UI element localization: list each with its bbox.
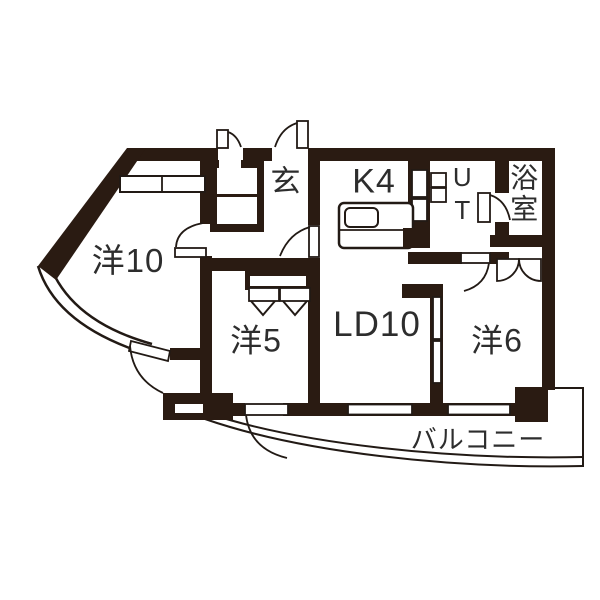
door-arc-yo10 — [176, 223, 203, 247]
slider-k-ut-upper — [412, 170, 427, 197]
wall-curve-stub — [170, 348, 202, 360]
wall-hall-south — [212, 258, 320, 271]
closet-yo5 — [245, 271, 311, 315]
door-leaf-entrance — [297, 121, 308, 148]
door-leaf-ut — [461, 253, 490, 263]
wall-se-block — [515, 387, 548, 422]
wall-top-2 — [243, 148, 272, 161]
wall-bath-south — [490, 235, 555, 247]
door-arc-storage — [228, 132, 241, 147]
slider-ld-yo6-upper — [433, 297, 441, 339]
storage-cell-upper — [217, 168, 257, 194]
room-label-bath: 浴室 — [508, 163, 537, 225]
door-leaf-yo5-balcony — [245, 404, 288, 415]
room-label-ut: UT — [449, 162, 476, 228]
wall-top-3 — [308, 148, 555, 161]
door-leaf-bath — [478, 193, 490, 222]
room-label-genkan: 玄 — [271, 168, 302, 199]
wall-ut-south — [408, 252, 462, 264]
room-label-yo10: 洋10 — [92, 244, 165, 278]
room-label-balcony: バルコニー — [411, 427, 545, 454]
closet-yo5-panel-left — [249, 288, 279, 301]
window-ld-south — [348, 405, 412, 415]
door-leaf-storage — [217, 130, 228, 148]
door-arc-ut — [464, 263, 489, 291]
storage-cell-lower — [217, 197, 257, 224]
sw-block-notch — [175, 404, 203, 413]
door-leaf-ld — [309, 226, 319, 257]
closet-yo6-door-left — [497, 259, 519, 281]
folding-door-mark-left — [251, 301, 275, 315]
window-yo6-south — [448, 405, 510, 415]
door-arc-ld — [280, 227, 310, 256]
closet-yo5-interior — [250, 276, 306, 286]
wall-yo10-east-lower — [200, 256, 212, 406]
wall-stub-ld — [402, 284, 443, 298]
slider-ld-yo6-lower — [433, 341, 441, 383]
wall-genkan-east-lower — [308, 258, 320, 271]
closet-yo5-panel-right — [280, 288, 310, 301]
closet-yo10 — [120, 176, 205, 192]
floorplan-drawing — [0, 0, 600, 600]
kitchen-sink — [345, 208, 378, 227]
wall-genkan-east-upper — [308, 161, 320, 225]
room-label-k4: K4 — [352, 165, 396, 200]
room-label-ld10: LD10 — [333, 307, 421, 343]
door-leaf-yo10 — [175, 248, 206, 257]
folding-door-mark-right — [283, 301, 307, 315]
room-label-yo5: 洋5 — [230, 325, 282, 358]
room-label-yo6: 洋6 — [471, 325, 523, 358]
ut-fixture-lower — [431, 188, 446, 202]
wall-bottom-west — [233, 403, 245, 416]
wall-right — [542, 148, 555, 390]
balcony-right-edge — [548, 388, 583, 467]
counter-end-block — [403, 228, 430, 248]
closet-yo6-door-right — [519, 259, 541, 281]
floorplan: 洋10 玄 K4 UT 浴室 洋5 LD10 洋6 バルコニー — [0, 0, 600, 600]
ut-fixture-upper — [431, 173, 446, 187]
door-arc-entrance — [275, 123, 297, 147]
storage-door-gap — [219, 158, 241, 170]
